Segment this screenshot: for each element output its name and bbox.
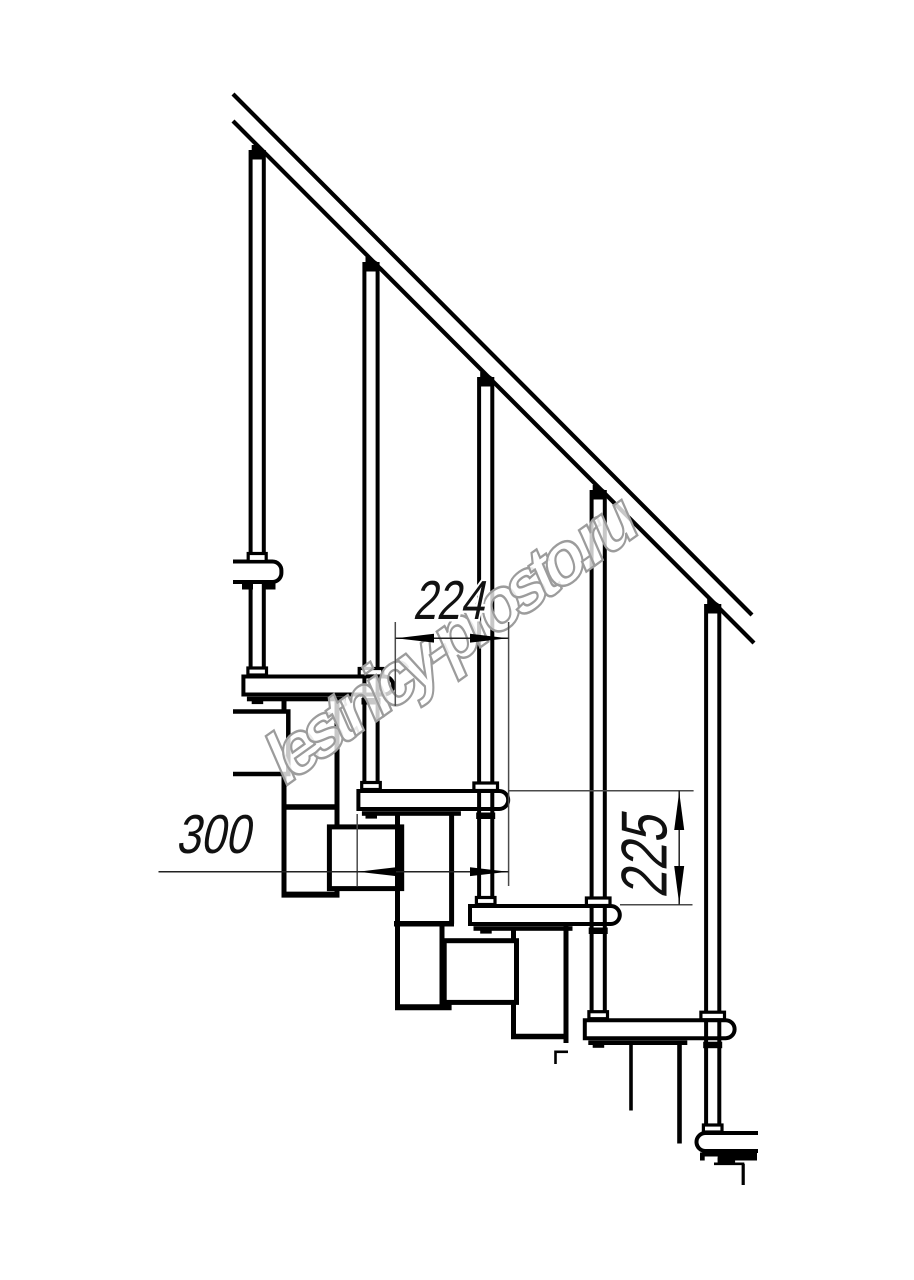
svg-text:224: 224 bbox=[410, 570, 494, 631]
svg-text:225: 225 bbox=[607, 804, 680, 902]
svg-text:300: 300 bbox=[173, 804, 260, 865]
